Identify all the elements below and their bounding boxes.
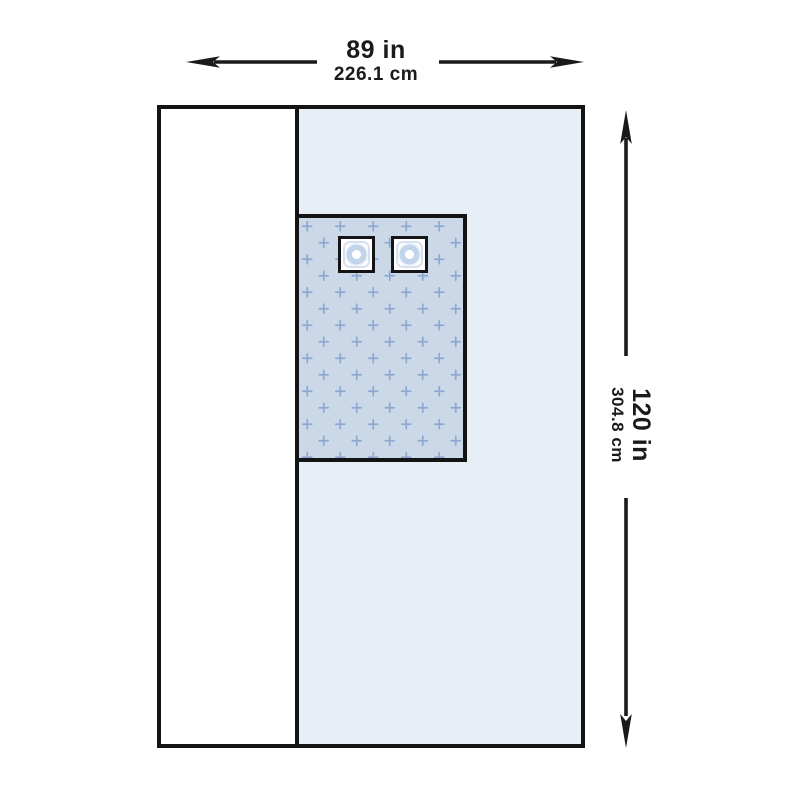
width-centimeters: 226.1 cm	[315, 65, 437, 84]
tube-holder-ring-icon	[396, 241, 423, 268]
drape-outline	[157, 105, 585, 748]
dimension-arrow-left-icon	[184, 54, 318, 70]
height-dimension-label: 120 in 304.8 cm	[603, 380, 653, 470]
tube-holder-right	[391, 236, 428, 273]
drape-side-panel	[161, 109, 295, 744]
width-inches: 89 in	[315, 38, 437, 63]
reinforcement-panel	[295, 214, 467, 462]
dimension-arrow-right-icon	[438, 54, 586, 70]
drape-spec-diagram: 89 in 226.1 cm	[0, 0, 800, 800]
tube-holder-left	[338, 236, 375, 273]
width-dimension-label: 89 in 226.1 cm	[315, 38, 437, 84]
tube-holder-ring-icon	[343, 241, 370, 268]
height-inches: 120 in	[628, 380, 653, 470]
height-centimeters: 304.8 cm	[609, 380, 626, 470]
cross-pattern	[299, 218, 463, 458]
dimension-arrow-down-icon	[618, 496, 634, 750]
dimension-arrow-up-icon	[618, 108, 634, 358]
